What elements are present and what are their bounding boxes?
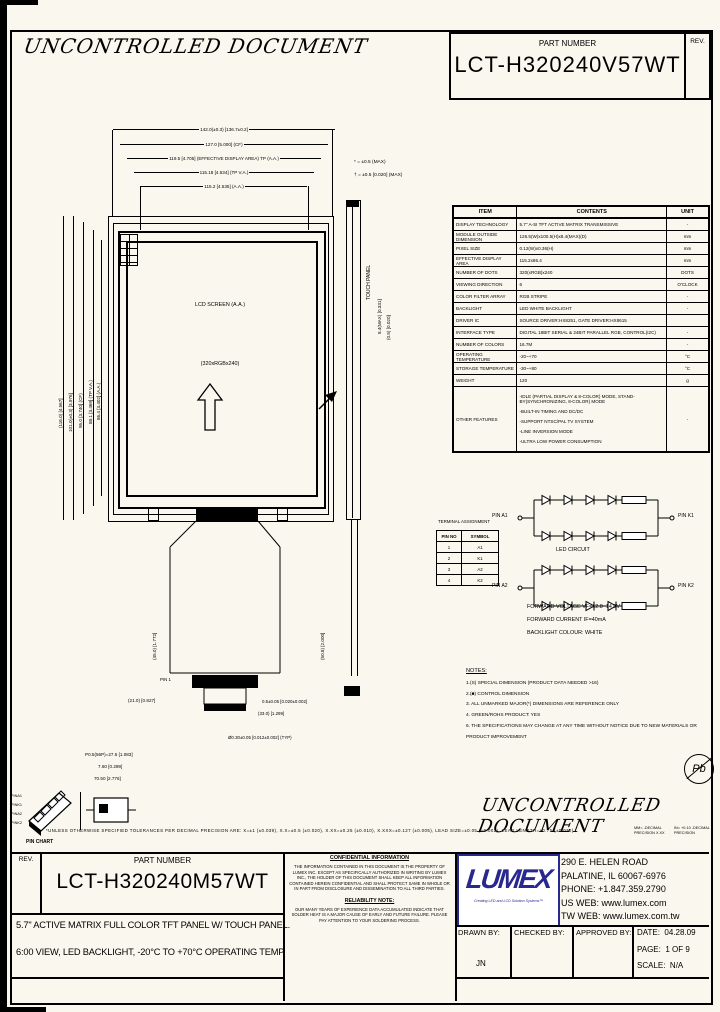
spec-header-row: ITEM CONTENTS UNIT <box>453 206 709 218</box>
led-circuit-caption: LED CIRCUIT <box>556 548 590 554</box>
rev-label: REV. <box>686 38 709 45</box>
dim-label: 142.0(±0.3) [136.7±0.2] <box>200 127 248 132</box>
terminal-table-caption: TERMINAL ASSIGNMENT <box>434 520 494 525</box>
address-line: US WEB: www.lumex.com <box>561 897 680 911</box>
terminal-row: 4K2 <box>437 575 499 586</box>
address-line: 290 E. HELEN ROAD <box>561 856 680 870</box>
spec-row: DISPLAY TECHNOLOGY5.7" A-SI TFT ACTIVE M… <box>453 218 709 231</box>
dim-left-3: 95.0 [3.740] (CF) <box>78 393 83 428</box>
pin-label: PINK1 <box>11 801 22 810</box>
unit: O'CLOCK <box>667 279 709 291</box>
terminal-header-row: PIN NO SYMBOL <box>437 531 499 542</box>
pin-chart-pins: PINA1 PINK1 PINA2 PINK2 <box>11 792 22 828</box>
led-notes: FORWARD VOLTAGE VF=12.8~14.0V FORWARD CU… <box>527 601 620 640</box>
dim-bottom-1: (21.0) [0.827] <box>128 698 155 703</box>
dim-line <box>83 222 84 514</box>
item: DRIVER IC <box>453 315 517 327</box>
drawn-by-value: JN <box>476 960 486 969</box>
line <box>572 925 574 977</box>
item: MODULE OUTSIDE DIMENSION <box>453 231 517 243</box>
scale-label: SCALE: <box>637 961 665 970</box>
pin-no: 4 <box>437 575 462 586</box>
note-item: 4. GREEN/ROHS PRODUCT: YES <box>466 711 712 722</box>
dim-top-5: 115.2 [4.535] (A.A.) <box>140 184 308 189</box>
dim-bottom-4: Ø0.30±0.05 [0.012±0.002] (TYP) <box>228 736 292 741</box>
connector-side-icon <box>86 790 136 832</box>
fpc-left-dim: (45.0) [1.772] <box>152 633 157 660</box>
rev-cell: REV. <box>684 34 709 98</box>
scan-edge-top <box>0 0 38 5</box>
unit: mm <box>667 255 709 267</box>
item: STORAGE TEMPERATURE <box>453 363 517 375</box>
dim-top-2: 127.0 [5.000] (CF) <box>119 142 329 147</box>
pin-label: PINK2 <box>11 819 22 828</box>
item: BACKLIGHT <box>453 303 517 315</box>
line <box>357 520 358 676</box>
note-item: 1.(S) SPECIAL DIMENSION (PRODUCT DATA NE… <box>466 679 712 690</box>
feature-line: -ULTRA LOW POWER CONSUMPTION <box>519 439 664 444</box>
reliability-body: OUR MANY YEARS OF EXPERIENCE DATA ACCUMU… <box>288 907 451 924</box>
item: NUMBER OF DOTS <box>453 267 517 279</box>
dim-bottom-3: (33.0) [1.299] <box>258 712 284 717</box>
terminal-row: 2K1 <box>437 553 499 564</box>
spec-row: INTERFACE TYPEDIGITAL 18BIT SERIAL & 24B… <box>453 327 709 339</box>
description-line-1: 5.7" ACTIVE MATRIX FULL COLOR TFT PANEL … <box>16 920 290 930</box>
unit: mm <box>667 231 709 243</box>
contents: 16.7M <box>517 339 667 351</box>
legend-line-2: † = ±0.5 [0.020] (MAX) <box>354 173 402 178</box>
side-view-body <box>346 200 361 520</box>
scale-value: N/A <box>670 961 683 970</box>
date-row: DATE: 04.28.09 <box>637 929 696 938</box>
fpc-side-dim: (50.8) [2.000] <box>320 633 325 660</box>
line <box>10 852 709 854</box>
scan-edge-bottom <box>0 1007 46 1012</box>
datasheet-page: UNCONTROLLED DOCUMENT PART NUMBER LCT-H3… <box>0 0 720 1012</box>
spec-row: BACKLIGHTLED WHITE BACKLIGHT- <box>453 303 709 315</box>
spec-row: MODULE OUTSIDE DIMENSION126.5(W)x100.5(H… <box>453 231 709 243</box>
tolerance-in: IN= +0.10 -DECIMAL PRECISION <box>674 826 710 835</box>
symbol: A2 <box>462 564 499 575</box>
pin-no: 3 <box>437 564 462 575</box>
address-line: TW WEB: www.lumex.com.tw <box>561 910 680 924</box>
spec-row: EFFECTIVE DISPLAY AREA115.2x86.4mm <box>453 255 709 267</box>
page-value: 1 OF 9 <box>665 945 689 954</box>
unit: °C <box>667 351 709 363</box>
pin-no: 1 <box>437 542 462 553</box>
pin-k1-label: PIN K1 <box>678 513 694 519</box>
pin-a1-label: PIN A1 <box>492 513 508 519</box>
contents: 120 <box>517 375 667 387</box>
unit: - <box>667 327 709 339</box>
feature-line: -IDLE (PARTIAL DISPLAY & 8-COLOR) MODE, … <box>519 394 664 404</box>
fpc-flex-outline <box>150 515 310 727</box>
item: DISPLAY TECHNOLOGY <box>453 218 517 231</box>
dim-label: 127.0 [5.000] (CF) <box>205 142 242 147</box>
note-item: 6. THE SPECIFICATIONS MAY CHANGE AT ANY … <box>466 722 712 744</box>
part-number-cell: PART NUMBER LCT-H320240V57WT <box>451 34 684 98</box>
forward-current-note: FORWARD CURRENT IF=40mA <box>527 614 620 627</box>
line <box>510 925 512 977</box>
spec-row: PIXEL SIZE0.12(W)x0.36(H)mm <box>453 243 709 255</box>
symbol: K1 <box>462 553 499 564</box>
line <box>686 758 711 779</box>
spec-row: OPERATING TEMPERATURE-20~+70°C <box>453 351 709 363</box>
led-circuit-1 <box>516 490 676 546</box>
spec-row: VIEWING DIRECTION6O'CLOCK <box>453 279 709 291</box>
side-dim-1: 8.4(MAX) [0.331] <box>377 299 382 334</box>
note-item: 3. ALL UNMARKED MAJOR(*) DIMENSIONS ARE … <box>466 700 712 711</box>
uncontrolled-watermark-top: UNCONTROLLED DOCUMENT <box>22 34 370 58</box>
active-area-outline <box>126 241 318 497</box>
contents: DIGITAL 18BIT SERIAL & 24BIT PARALLEL RG… <box>517 327 667 339</box>
contents: 5.7" A-SI TFT ACTIVE MATRIX TRANSMISSIVE <box>517 218 667 231</box>
description-line-2: 6:00 VIEW, LED BACKLIGHT, -20°C TO +70°C… <box>16 947 285 957</box>
tolerance-note: *UNLESS OTHERWISE SPECIFIED TOLERANCES P… <box>46 829 574 834</box>
pb-free-icon: Pb <box>684 754 714 784</box>
item: VIEWING DIRECTION <box>453 279 517 291</box>
extension-line <box>332 130 333 216</box>
pin-k2-label: PIN K2 <box>678 583 694 589</box>
dim-top-4: 115.18 [4.534] (TP V.A.) <box>133 170 315 175</box>
item: EFFECTIVE DISPLAY AREA <box>453 255 517 267</box>
viewing-direction-arrow-icon <box>197 383 223 431</box>
contents: 126.5(W)x100.5(H)x8.4(MAX)(D) <box>517 231 667 243</box>
approved-by-label: APPROVED BY: <box>576 929 631 937</box>
dots-label: (320xRGBx240) <box>165 362 275 368</box>
col-unit: UNIT <box>667 206 709 218</box>
unit: °C <box>667 363 709 375</box>
backlight-colour-note: BACKLIGHT COLOUR: WHITE <box>527 627 620 640</box>
tb-rev-label: REV. <box>12 856 40 863</box>
tb-part-number-label: PART NUMBER <box>42 857 283 866</box>
item: INTERFACE TYPE <box>453 327 517 339</box>
line <box>351 520 352 676</box>
legend-line-1: * = ±0.5 (MAX) <box>354 160 386 165</box>
dim-top-3: 119.5 [4.705] (EFFECTIVE DISPLAY AREA) T… <box>126 156 322 161</box>
line <box>352 201 353 518</box>
unit: g <box>667 375 709 387</box>
dim-bottom-5: P0.5(56P)=27.5 [1.083] <box>85 752 133 757</box>
notes-title: NOTES: <box>466 666 712 677</box>
confidential-body: THE INFORMATION CONTAINED IN THIS DOCUME… <box>288 864 451 892</box>
terminal-row: 1A1 <box>437 542 499 553</box>
notes-block: NOTES: 1.(S) SPECIAL DIMENSION (PRODUCT … <box>466 666 712 744</box>
contents: SOURCE DRIVER:HX8251, GATE DRIVER:HX8615 <box>517 315 667 327</box>
contents: 0.12(W)x0.36(H) <box>517 243 667 255</box>
dim-label: 115.2 [4.535] (A.A.) <box>204 184 244 189</box>
pin-no: 2 <box>437 553 462 564</box>
tolerance-mm: MM= -DECIMAL PRECISION X.XX <box>634 826 672 835</box>
pin-label: PINA1 <box>11 792 22 801</box>
side-view-connector <box>344 686 360 696</box>
pin-no-header: PIN NO <box>437 531 462 542</box>
pin-chart-caption: PIN CHART <box>26 840 53 846</box>
symbol: A1 <box>462 542 499 553</box>
dim-line <box>63 216 64 520</box>
side-dim-2: (0.5) [0.020] <box>386 315 391 340</box>
line <box>455 977 709 979</box>
feature-list: -IDLE (PARTIAL DISPLAY & 8-COLOR) MODE, … <box>517 387 667 453</box>
dim-left-2: 101.0(±0.3) [3.976] <box>68 393 73 432</box>
pin-label: PINA2 <box>11 810 22 819</box>
dim-label: 119.5 [4.705] (EFFECTIVE DISPLAY AREA) T… <box>169 156 279 161</box>
touch-panel-label: TOUCH PANEL <box>366 265 372 300</box>
page-label: PAGE: <box>637 945 661 954</box>
line <box>10 913 283 915</box>
checked-by-label: CHECKED BY: <box>514 929 564 937</box>
unit: mm <box>667 243 709 255</box>
unit: - <box>667 387 709 453</box>
forward-voltage-note: FORWARD VOLTAGE VF=12.8~14.0V <box>527 601 620 614</box>
line <box>632 925 634 977</box>
col-item: ITEM <box>453 206 517 218</box>
item: NUMBER OF COLORS <box>453 339 517 351</box>
dim-line <box>93 230 94 506</box>
spec-row: STORAGE TEMPERATURE-30~+80°C <box>453 363 709 375</box>
contents: 320(xRGB)x240 <box>517 267 667 279</box>
item: COLOR FILTER ARRAY <box>453 291 517 303</box>
item: OTHER FEATURES <box>453 387 517 453</box>
contents: RGB STRIPE <box>517 291 667 303</box>
part-number-header-box: PART NUMBER LCT-H320240V57WT REV. <box>449 32 711 100</box>
lumex-logo-text: LUMEX <box>457 864 559 895</box>
dim-left-1: (116.0) [4.567] <box>58 398 63 428</box>
feature-line: -BUILT-IN TIMING AND DC/DC <box>519 409 664 414</box>
screen-area-label: LCD SCREEN (A.A.) <box>165 303 275 309</box>
part-number-label: PART NUMBER <box>451 39 684 48</box>
item: OPERATING TEMPERATURE <box>453 351 517 363</box>
symbol-header: SYMBOL <box>462 531 499 542</box>
lumex-logo-tagline: Creating LED and LCD Solution Systems™ <box>459 899 558 903</box>
item: WEIGHT <box>453 375 517 387</box>
dim-line <box>101 240 102 496</box>
col-contents: CONTENTS <box>517 206 667 218</box>
reliability-title: RELIABILITY NOTE: <box>288 898 451 905</box>
spec-row: COLOR FILTER ARRAYRGB STRIPE- <box>453 291 709 303</box>
scale-row: SCALE: N/A <box>637 962 683 971</box>
line <box>10 977 283 979</box>
unit: DOTS <box>667 267 709 279</box>
terminal-row: 3A2 <box>437 564 499 575</box>
contents: -30~+80 <box>517 363 667 375</box>
spec-row: NUMBER OF COLORS16.7M- <box>453 339 709 351</box>
address-line: PALATINE, IL 60067-6976 <box>561 870 680 884</box>
feature-line: -SUPPORT NTSC/PAL TV SYSTEM <box>519 419 664 424</box>
terminal-table: PIN NO SYMBOL 1A1 2K1 3A2 4K2 <box>436 530 499 586</box>
spec-row: DRIVER ICSOURCE DRIVER:HX8251, GATE DRIV… <box>453 315 709 327</box>
confidential-block: CONFIDENTIAL INFORMATION THE INFORMATION… <box>288 855 451 923</box>
scan-edge-left <box>0 0 7 1012</box>
led-array-detail <box>120 234 138 266</box>
item: PIXEL SIZE <box>453 243 517 255</box>
date-label: DATE: <box>637 928 660 937</box>
dim-bottom-2: 0.5±0.05 [0.020±0.002] <box>262 700 307 705</box>
spec-row: NUMBER OF DOTS320(xRGB)x240DOTS <box>453 267 709 279</box>
pin1-label: PIN 1 <box>160 678 171 683</box>
dim-left-5: 86.4 [3.402] (A.A.) <box>96 383 101 420</box>
spec-row-other-features: OTHER FEATURES -IDLE (PARTIAL DISPLAY & … <box>453 387 709 453</box>
date-value: 04.28.09 <box>664 928 695 937</box>
extension-line <box>112 130 113 216</box>
line <box>455 925 709 927</box>
unit: - <box>667 303 709 315</box>
note-item: 2.(■) CONTROL DIMENSION <box>466 690 712 701</box>
unit: - <box>667 339 709 351</box>
dim-bottom-6: 7.60 [0.299] <box>98 764 122 769</box>
dim-left-4: 88.1 [3.469] (TP V.A.) <box>88 380 93 424</box>
company-address: 290 E. HELEN ROAD PALATINE, IL 60067-697… <box>561 856 680 924</box>
drawn-by-label: DRAWN BY: <box>458 929 500 937</box>
pointer-arrow-icon <box>318 390 338 410</box>
address-line: PHONE: +1.847.359.2790 <box>561 883 680 897</box>
part-number-value: LCT-H320240V57WT <box>451 52 684 78</box>
contents: -20~+70 <box>517 351 667 363</box>
confidential-title: CONFIDENTIAL INFORMATION <box>288 855 451 862</box>
line <box>129 235 130 265</box>
lumex-logo: LUMEX Creating LED and LCD Solution Syst… <box>457 854 560 927</box>
pin-a2-label: PIN A2 <box>492 583 508 589</box>
feature-line: -LINE INVERSION MODE <box>519 429 664 434</box>
spec-table: ITEM CONTENTS UNIT DISPLAY TECHNOLOGY5.7… <box>452 205 710 453</box>
contents: LED WHITE BACKLIGHT <box>517 303 667 315</box>
dim-line <box>80 792 81 830</box>
dim-bottom-7: 70.50 [2.776] <box>94 776 121 781</box>
contents: 115.2x86.4 <box>517 255 667 267</box>
tb-part-number: LCT-H320240M57WT <box>42 870 283 893</box>
contents: 6 <box>517 279 667 291</box>
dim-top-1: 142.0(±0.3) [136.7±0.2] <box>112 127 336 132</box>
unit: - <box>667 291 709 303</box>
dim-label: 115.18 [4.534] (TP V.A.) <box>200 170 249 175</box>
unit: - <box>667 218 709 231</box>
spec-row: WEIGHT120g <box>453 375 709 387</box>
unit <box>667 315 709 327</box>
dim-line <box>73 216 74 520</box>
page-row: PAGE: 1 OF 9 <box>637 946 690 955</box>
